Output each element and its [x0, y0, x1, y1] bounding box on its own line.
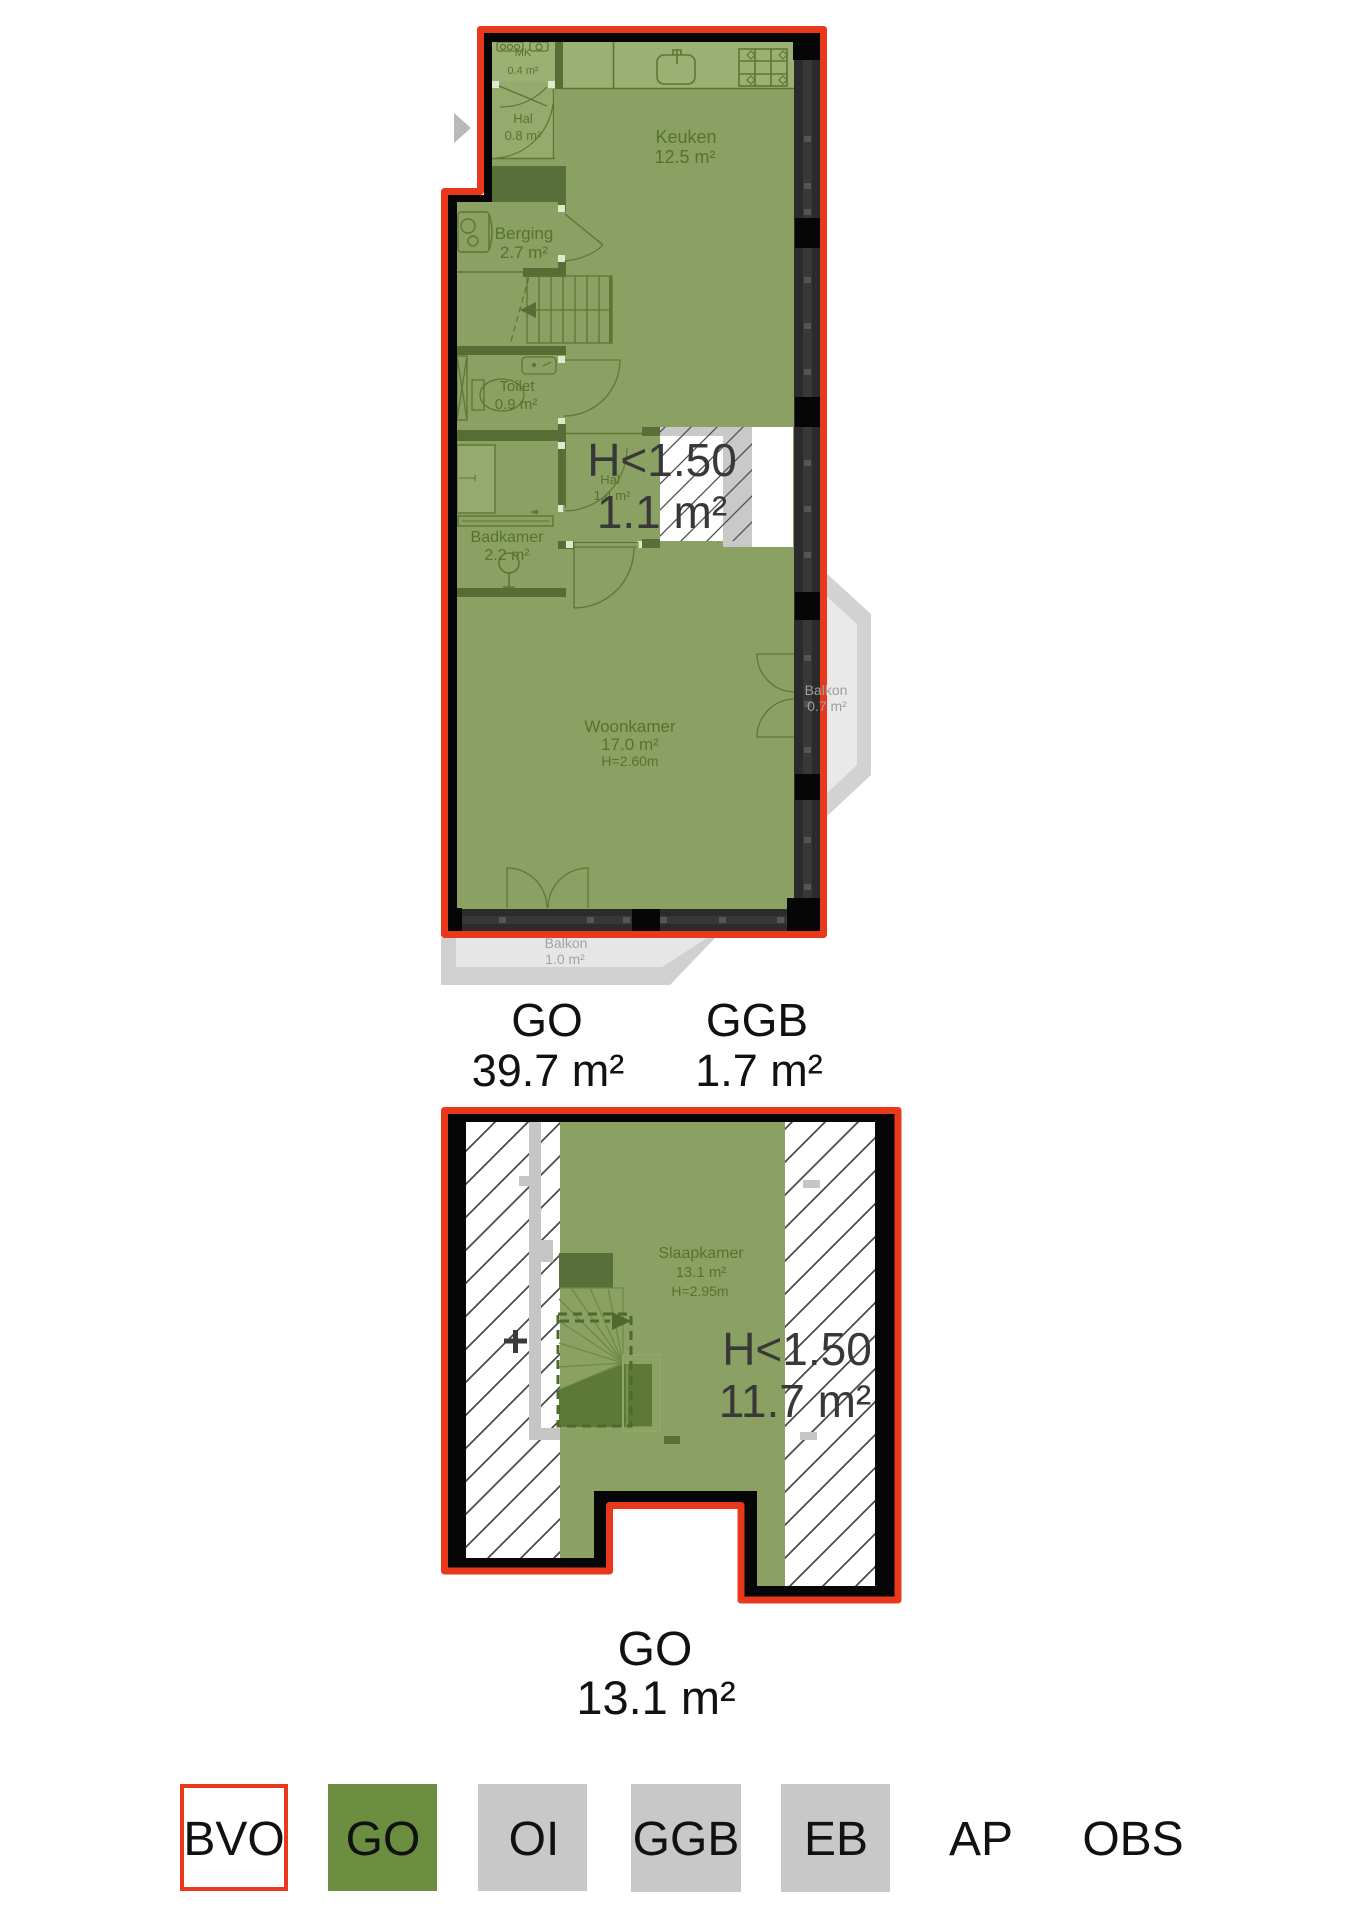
svg-text:1.0 m²: 1.0 m² — [545, 951, 585, 967]
svg-text:Badkamer: Badkamer — [471, 529, 545, 546]
svg-text:Balkon: Balkon — [545, 935, 588, 951]
svg-text:Slaapkamer: Slaapkamer — [658, 1245, 744, 1262]
svg-text:BVO: BVO — [183, 1813, 284, 1866]
svg-text:GGB: GGB — [706, 994, 808, 1046]
svg-text:H=2.60m: H=2.60m — [601, 753, 658, 769]
svg-text:1.7 m²: 1.7 m² — [695, 1045, 823, 1096]
svg-text:17.0 m²: 17.0 m² — [601, 735, 659, 754]
svg-text:0.9 m²: 0.9 m² — [495, 396, 538, 413]
svg-text:Berging: Berging — [495, 224, 554, 243]
svg-text:0.7 m²: 0.7 m² — [807, 698, 847, 714]
svg-text:39.7 m²: 39.7 m² — [472, 1045, 625, 1096]
svg-text:Hal: Hal — [513, 111, 533, 126]
svg-text:OI: OI — [509, 1813, 560, 1866]
svg-text:H<1.50: H<1.50 — [722, 1323, 872, 1375]
svg-text:GO: GO — [511, 994, 583, 1046]
svg-text:Woonkamer: Woonkamer — [584, 717, 676, 736]
svg-text:0.8 m²: 0.8 m² — [505, 128, 543, 143]
svg-text:GO: GO — [618, 1623, 693, 1676]
svg-text:H<1.50: H<1.50 — [587, 434, 737, 486]
svg-text:Toilet: Toilet — [499, 378, 535, 395]
svg-text:Balkon: Balkon — [805, 682, 848, 698]
svg-text:2.7 m²: 2.7 m² — [500, 243, 549, 262]
svg-text:MK: MK — [515, 47, 532, 59]
svg-text:H=2.95m: H=2.95m — [671, 1283, 728, 1299]
svg-text:13.1 m²: 13.1 m² — [576, 1671, 735, 1724]
svg-text:12.5 m²: 12.5 m² — [654, 147, 715, 167]
svg-text:13.1 m²: 13.1 m² — [676, 1264, 727, 1281]
svg-text:2.2 m²: 2.2 m² — [484, 547, 530, 564]
svg-text:0.4 m²: 0.4 m² — [507, 65, 539, 77]
svg-text:AP: AP — [949, 1813, 1013, 1866]
svg-text:1.1 m²: 1.1 m² — [597, 486, 727, 538]
svg-text:Keuken: Keuken — [655, 127, 716, 147]
svg-text:GO: GO — [346, 1813, 421, 1866]
svg-text:GGB: GGB — [633, 1813, 740, 1866]
svg-text:EB: EB — [804, 1813, 868, 1866]
svg-text:11.7 m²: 11.7 m² — [719, 1375, 872, 1427]
svg-text:OBS: OBS — [1082, 1813, 1183, 1866]
